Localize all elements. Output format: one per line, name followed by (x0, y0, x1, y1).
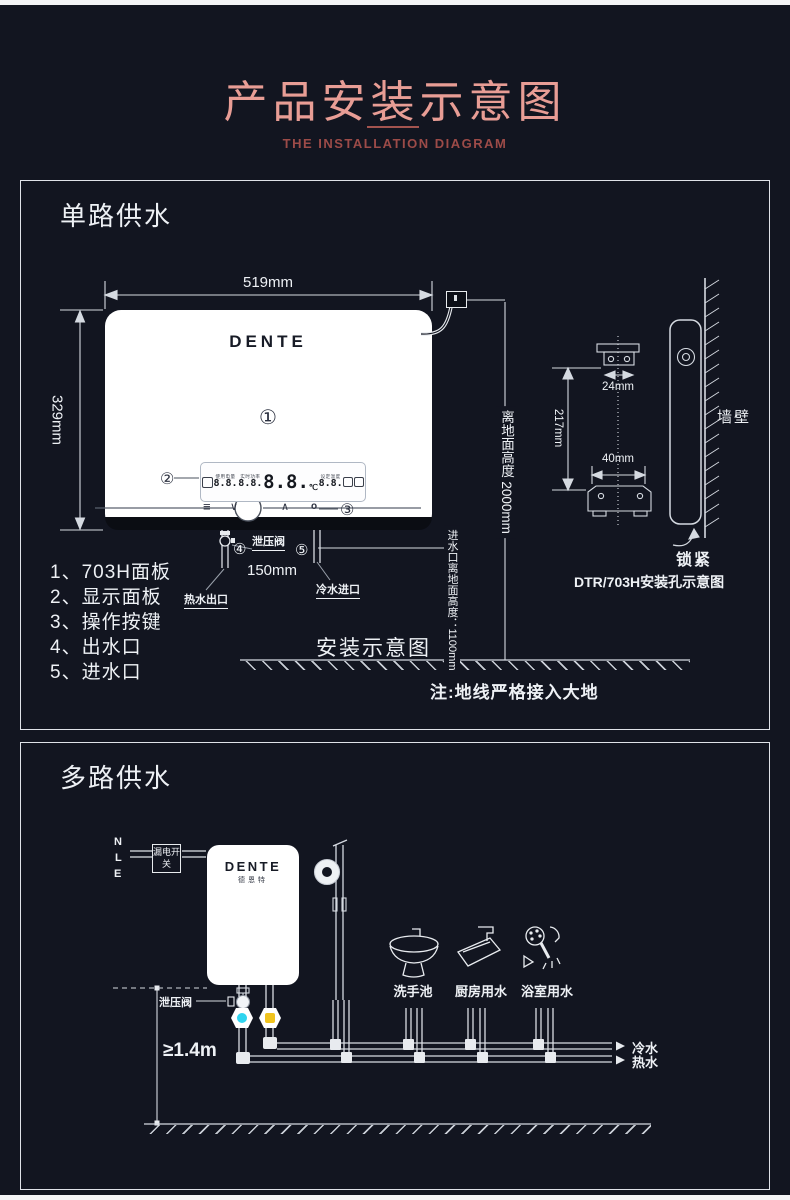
parts-list-item: 2、显示面板 (50, 585, 171, 610)
canvas: 产品安装示意图 THE INSTALLATION DIAGRAM (0, 0, 790, 1200)
socket-pin (454, 295, 457, 301)
down-button-icon[interactable]: ∨ (230, 500, 238, 513)
brand-cn: 德恩特 (238, 875, 268, 885)
relief-valve-label-2: 泄压阀 (159, 994, 192, 1010)
display-mode-icon (202, 477, 213, 488)
ground-note: 注:地线严格接入大地 (430, 678, 599, 703)
parts-list: 1、703H面板 2、显示面板 3、操作按键 4、出水口 5、进水口 (50, 560, 171, 685)
wall-height-label: 离地面高度 2000mm (496, 406, 516, 538)
display-icon-a (343, 477, 353, 487)
min-height-label: ≥1.4m (163, 1040, 217, 1062)
mount-dim-top: 24mm (602, 381, 634, 393)
hot-outlet-label: 热水出口 (184, 591, 228, 609)
brand-logo-2: DENTE (225, 859, 282, 874)
power-socket (446, 291, 467, 308)
menu-button-icon[interactable]: ≡ (203, 499, 211, 514)
wire-label-n: N (114, 836, 122, 848)
power-button-icon[interactable]: o (311, 501, 317, 512)
mount-dim-mid: 217mm (552, 405, 564, 451)
callout-3: ③ (340, 500, 354, 520)
title-divider (367, 126, 419, 128)
relief-valve-label-1: 泄压阀 (252, 533, 285, 551)
parts-list-item: 4、出水口 (50, 635, 171, 660)
fixture-label-bathroom: 浴室用水 (521, 981, 573, 1000)
dim-height-label: 329mm (49, 391, 66, 449)
bottom-strip (0, 1195, 790, 1200)
parts-list-item: 5、进水口 (50, 660, 171, 685)
pipe-gap-label: 150mm (247, 562, 297, 579)
breaker-box: 漏电开关 (152, 844, 181, 873)
display-group-3: 设定温度 8.8. (319, 475, 343, 490)
wire-label-e: E (114, 868, 121, 880)
cold-inlet-label: 冷水进口 (316, 581, 360, 599)
fixture-label-kitchen: 厨房用水 (455, 981, 507, 1000)
display-icon-b (354, 477, 364, 487)
mount-dim-bottom: 40mm (602, 453, 634, 465)
display-panel: 使用电量 8.8. 实时功率 8.8. 8.8. ℃ 设定温度 8.8. (200, 462, 366, 502)
callout-5: ⑤ (295, 541, 308, 559)
page-title: 产品安装示意图 (224, 66, 567, 130)
display-group-2: 实时功率 8.8. (238, 475, 262, 490)
brand-logo: DENTE (229, 332, 307, 352)
section-multi-supply (20, 742, 770, 1190)
heater-bottom-trim (105, 517, 432, 530)
callout-4: ④ (233, 540, 246, 558)
ground-hatch-2 (144, 1125, 651, 1134)
section1-heading: 单路供水 (60, 196, 172, 233)
section2-heading: 多路供水 (60, 758, 172, 795)
display-group-main: 8.8. ℃ (263, 473, 318, 492)
fixture-label-washbasin: 洗手池 (393, 981, 432, 1000)
up-button-icon[interactable]: ∧ (281, 500, 289, 513)
top-strip (0, 0, 790, 5)
wire-label-l: L (115, 852, 122, 864)
dim-width-label: 519mm (243, 274, 293, 291)
parts-list-item: 1、703H面板 (50, 560, 171, 585)
callout-2: ② (160, 469, 174, 489)
ground-hatch-1 (240, 661, 690, 670)
display-group-1: 使用电量 8.8. (213, 475, 237, 490)
callout-1: ① (259, 405, 277, 430)
install-caption: 安装示意图 (316, 632, 431, 662)
wall-label: 墙壁 (717, 406, 751, 427)
mounting-caption: DTR/703H安装孔示意图 (574, 572, 724, 592)
lock-label: 锁紧 (676, 546, 712, 570)
inlet-height-label: 进水口离地面高度：1100mm (444, 526, 460, 675)
hot-water-label: 热水 (632, 1052, 658, 1071)
parts-list-item: 3、操作按键 (50, 610, 171, 635)
page-subtitle: THE INSTALLATION DIAGRAM (283, 136, 508, 151)
